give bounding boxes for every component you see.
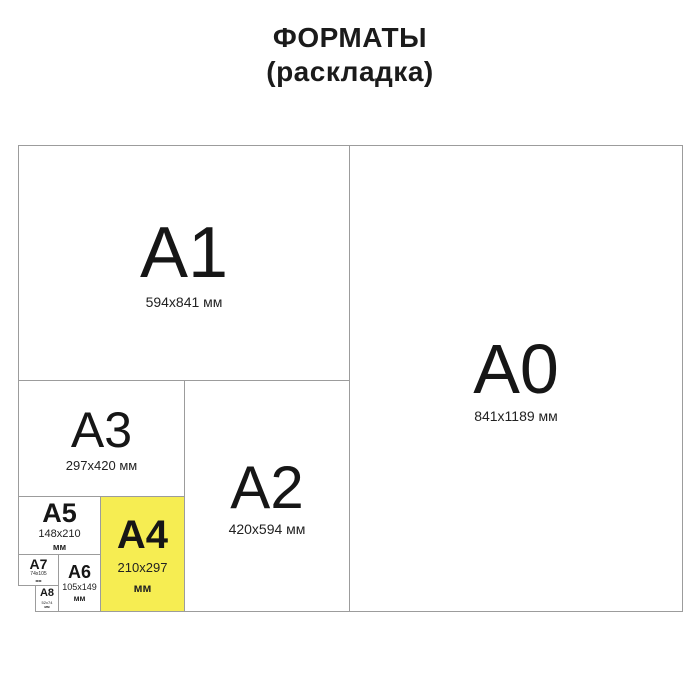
format-size: 841x1189 (474, 408, 534, 424)
format-label: A2 (230, 456, 303, 519)
diagram-title-line2: (раскладка) (0, 55, 700, 89)
format-region-a2: A2 420x594 мм (184, 380, 350, 612)
format-size: 420x594 (229, 521, 283, 537)
format-size: 297x420 (66, 458, 116, 473)
format-region-a6: A6 105x149мм (58, 554, 101, 612)
format-unit: мм (539, 408, 558, 424)
format-unit: мм (42, 605, 53, 609)
format-region-a4-highlighted: A4 210x297мм (100, 496, 185, 612)
format-label: A4 (117, 514, 168, 556)
format-label: A8 (40, 588, 54, 600)
format-region-a3: A3 297x420 мм (18, 380, 185, 497)
format-size: 594x841 (146, 294, 200, 310)
format-size: 148x210 (38, 528, 80, 540)
format-label: A6 (68, 563, 91, 582)
format-unit: мм (118, 581, 168, 595)
format-region-a1: A1 594x841 мм (18, 145, 350, 381)
format-dimensions: 210x297мм (118, 560, 168, 595)
format-label: A3 (71, 404, 132, 457)
format-dimensions: 841x1189 мм (474, 408, 558, 424)
format-dimensions: 148x210мм (38, 528, 80, 552)
diagram-title-line1: ФОРМАТЫ (0, 21, 700, 55)
format-unit: мм (286, 521, 305, 537)
format-region-a5: A5 148x210мм (18, 496, 101, 555)
format-label: A1 (140, 216, 228, 292)
format-dimensions: 52x74мм (42, 600, 53, 609)
format-dimensions: 297x420 мм (66, 458, 137, 473)
format-region-remainder (18, 585, 36, 612)
format-dimensions: 74x105мм (30, 571, 46, 583)
format-size: 74x105 (30, 571, 46, 577)
format-label: A5 (42, 499, 77, 527)
format-unit: мм (38, 542, 80, 552)
format-region-a7: A7 74x105мм (18, 554, 59, 586)
format-dimensions: 105x149мм (62, 582, 97, 603)
format-label: A7 (30, 557, 48, 572)
diagram-title: ФОРМАТЫ (раскладка) (0, 21, 700, 89)
format-unit: мм (203, 294, 222, 310)
format-unit: мм (62, 594, 97, 603)
format-unit: мм (30, 578, 46, 583)
format-region-a0: A0 841x1189 мм (349, 145, 683, 612)
format-region-a8: A8 52x74мм (35, 585, 59, 612)
format-dimensions: 594x841 мм (146, 294, 223, 310)
format-unit: мм (119, 458, 137, 473)
format-size: 210x297 (118, 560, 168, 575)
format-label: A0 (473, 333, 559, 407)
paper-formats-diagram: ФОРМАТЫ (раскладка) A1 594x841 мм A0 841… (0, 0, 700, 700)
format-dimensions: 420x594 мм (229, 521, 306, 537)
format-size: 105x149 (62, 582, 97, 592)
